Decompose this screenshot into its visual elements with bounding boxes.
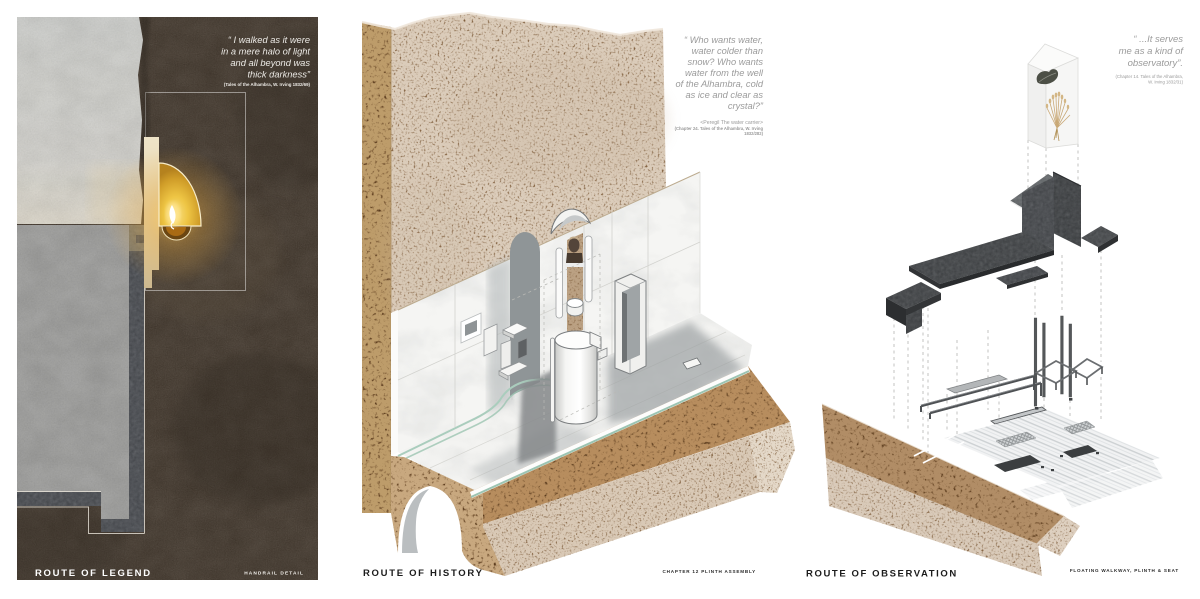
svg-text:of the Alhambra, cold: of the Alhambra, cold bbox=[675, 79, 763, 89]
svg-text:water colder than: water colder than bbox=[692, 46, 763, 56]
svg-text:snow? Who wants: snow? Who wants bbox=[688, 57, 764, 67]
svg-text:ROUTE OF LEGEND: ROUTE OF LEGEND bbox=[35, 568, 152, 579]
svg-text:as ice and clear as: as ice and clear as bbox=[685, 90, 763, 100]
svg-text:thick darkness”: thick darkness” bbox=[247, 70, 310, 80]
svg-text:“ ...It serves: “ ...It serves bbox=[1133, 34, 1183, 45]
svg-text:1832/282): 1832/282) bbox=[744, 131, 763, 136]
svg-text:observatory”.: observatory”. bbox=[1128, 58, 1183, 69]
svg-text:in a mere halo of light: in a mere halo of light bbox=[221, 47, 310, 57]
svg-text:ROUTE OF OBSERVATION: ROUTE OF OBSERVATION bbox=[806, 569, 958, 580]
svg-text:ROUTE OF HISTORY: ROUTE OF HISTORY bbox=[363, 568, 484, 579]
svg-text:HANDRAIL DETAIL: HANDRAIL DETAIL bbox=[244, 571, 304, 577]
svg-text:“ Who wants water,: “ Who wants water, bbox=[684, 35, 763, 45]
svg-text:CHAPTER 12 PLINTH ASSEMBLY: CHAPTER 12 PLINTH ASSEMBLY bbox=[663, 569, 756, 574]
svg-text:and all beyond was: and all beyond was bbox=[230, 58, 310, 68]
svg-text:water from the well: water from the well bbox=[685, 68, 764, 78]
svg-text:FLOATING WALKWAY, PLINTH & SEA: FLOATING WALKWAY, PLINTH & SEAT bbox=[1070, 568, 1179, 573]
svg-text:(Tales of the Alhambra, W. Irv: (Tales of the Alhambra, W. Irving 1832/6… bbox=[224, 82, 311, 87]
svg-text:me as a kind of: me as a kind of bbox=[1119, 46, 1185, 57]
svg-text:crystal?”: crystal?” bbox=[728, 101, 764, 111]
svg-text:“ I walked as it were: “ I walked as it were bbox=[228, 35, 310, 45]
svg-text:W. Irving 1832/31): W. Irving 1832/31) bbox=[1148, 80, 1183, 85]
svg-text:(Chapter 14. Tales of the Alha: (Chapter 14. Tales of the Alhambra, bbox=[1115, 74, 1183, 79]
